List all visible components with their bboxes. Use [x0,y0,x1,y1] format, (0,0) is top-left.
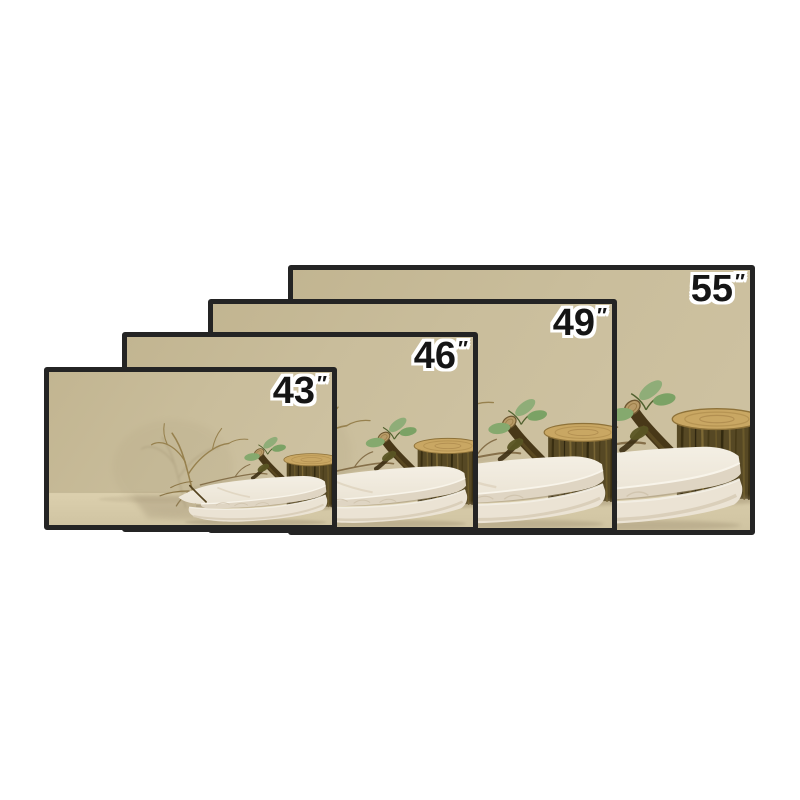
size-label-unit: ″ [735,272,745,292]
display-panel-43: 43″ [44,367,337,530]
size-label-unit: ″ [597,306,607,326]
size-label: 46″ [414,338,468,374]
size-label-value: 43 [273,370,315,412]
size-label-unit: ″ [458,339,468,359]
size-label-value: 49 [553,302,595,344]
size-label-unit: ″ [317,374,327,394]
size-comparison-stage: 55″ [0,0,800,800]
size-label: 55″ [691,271,745,307]
size-label: 43″ [273,373,327,409]
size-label-value: 55 [691,268,733,310]
size-label: 49″ [553,305,607,341]
size-label-value: 46 [414,335,456,377]
